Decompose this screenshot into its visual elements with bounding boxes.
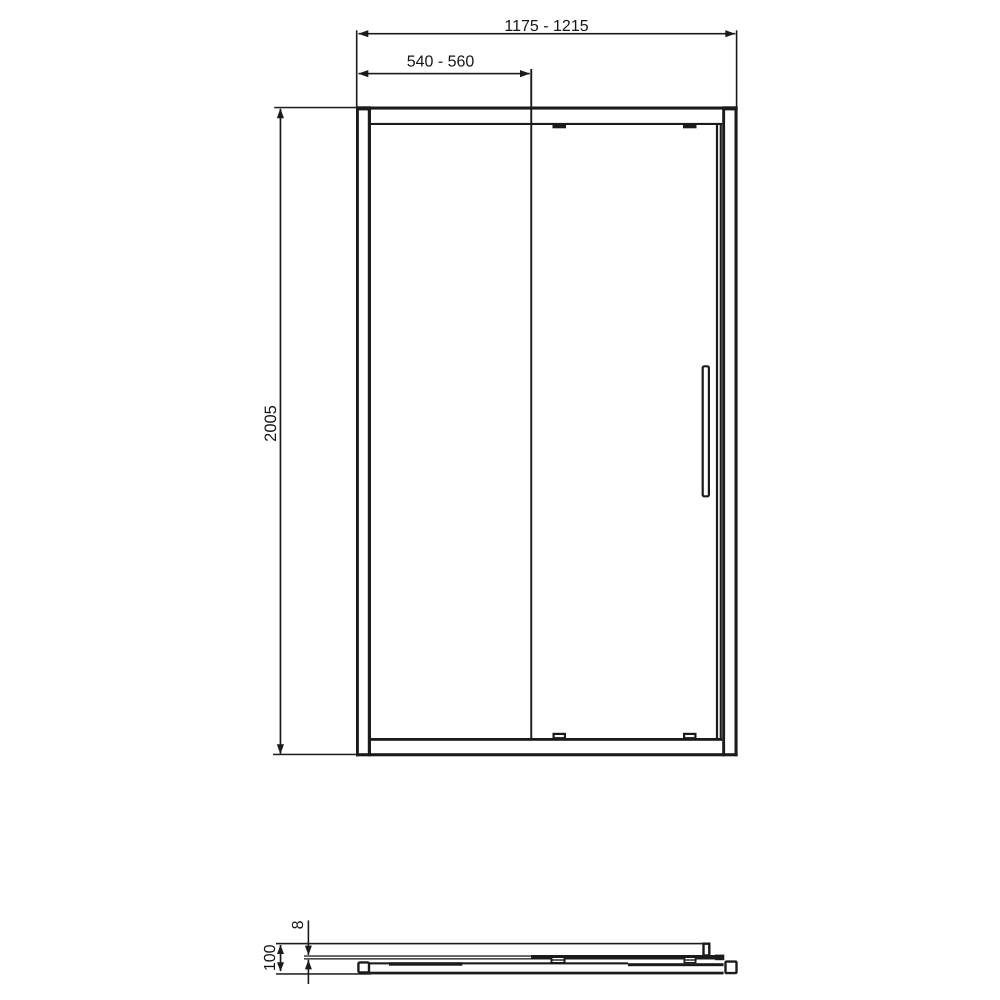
- svg-text:540 - 560: 540 - 560: [407, 54, 475, 71]
- svg-text:1175 - 1215: 1175 - 1215: [504, 18, 588, 35]
- svg-text:2005: 2005: [262, 405, 280, 442]
- svg-text:8: 8: [290, 920, 307, 929]
- svg-text:100: 100: [262, 944, 279, 971]
